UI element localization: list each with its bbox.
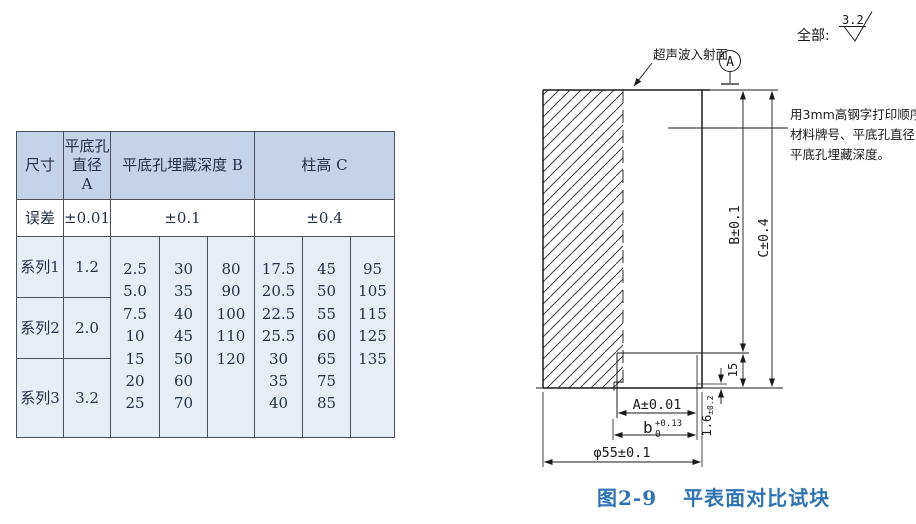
print-note-line-1: 用3mm高钢字打印顺序为: <box>790 107 916 122</box>
dim-label-B: B±0.1 <box>728 205 743 244</box>
print-note-line-2: 材料牌号、平底孔直径、 <box>790 127 916 142</box>
dim-label-C: C±0.4 <box>757 218 772 257</box>
dim-label-15: 15 <box>726 363 740 377</box>
dim-label-A: A±0.01 <box>633 397 682 413</box>
section-hatch <box>544 90 624 388</box>
figure-caption: 图2-9 平表面对比试块 <box>597 482 830 511</box>
print-note-line-3: 平底孔埋藏深度。 <box>790 147 890 162</box>
incident-surface-label: 超声波入射面 <box>653 47 728 62</box>
dim-label-dia55: φ55±0.1 <box>594 445 651 461</box>
surface-note-label: 全部: <box>797 27 830 44</box>
datum-letter: A <box>726 55 734 70</box>
roughness-value: 3.2 <box>842 13 864 27</box>
dim-label-b: b+0.130 <box>643 418 682 440</box>
figure-number: 图2-9 <box>597 486 657 510</box>
page: 尺寸 平底孔 直径 A 平底孔埋藏深度 B 柱高 C 误差 ±0.01 ±0.1… <box>0 0 916 524</box>
test-block-drawing: 全部: 3.2 超声波入射面 A 用3mm高钢字打印顺序为: 材料牌号、平底孔直… <box>0 0 916 524</box>
figure-title: 平表面对比试块 <box>683 486 830 510</box>
incident-leader <box>634 63 652 86</box>
